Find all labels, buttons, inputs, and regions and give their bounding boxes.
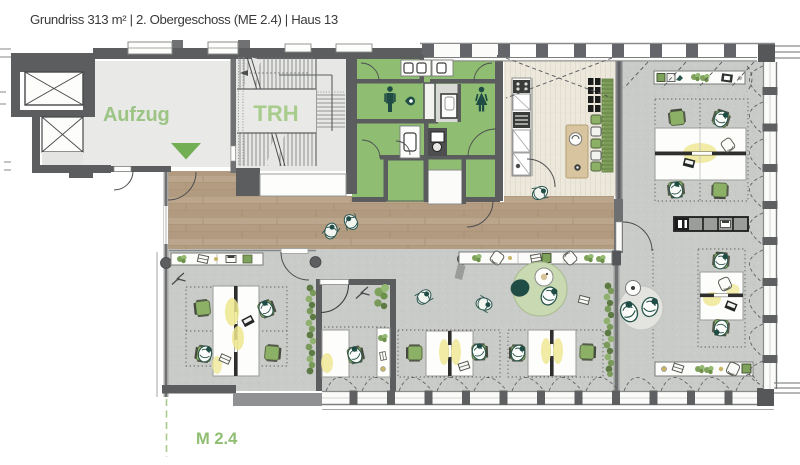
svg-text:Grundriss 313 m² | 2. Obergesc: Grundriss 313 m² | 2. Obergeschoss (ME 2…	[30, 12, 338, 27]
svg-text:Aufzug: Aufzug	[103, 104, 170, 126]
svg-text:M 2.4: M 2.4	[196, 430, 238, 448]
svg-text:TRH: TRH	[253, 101, 298, 126]
